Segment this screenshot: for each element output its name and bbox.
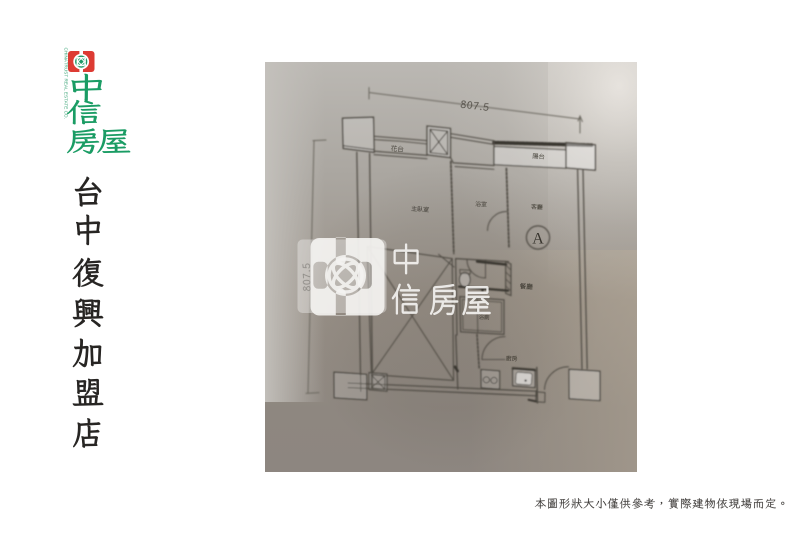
svg-text:CHINATRUST REAL ESTATE CO.: CHINATRUST REAL ESTATE CO. [64, 48, 69, 120]
svg-text:A: A [532, 230, 544, 247]
